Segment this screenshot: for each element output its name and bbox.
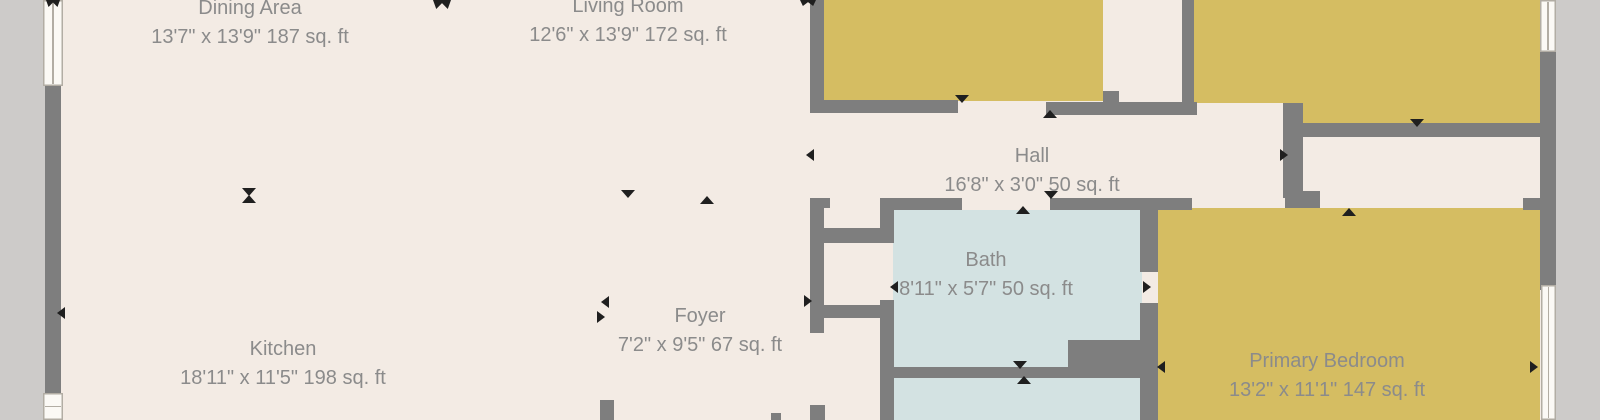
room-dims: 8'11" x 5'7" 50 sq. ft: [899, 275, 1073, 304]
wall-exterior-left: [45, 83, 61, 397]
wall-kitchen-stub: [600, 400, 614, 420]
wall-closet-right-end: [1523, 198, 1556, 210]
room-dims: 16'8" x 3'0" 50 sq. ft: [944, 171, 1119, 200]
room-name: Bath: [899, 246, 1073, 275]
wall-bath-left-lower: [880, 300, 894, 420]
door-marker-up-icon: [1016, 206, 1030, 214]
door-marker-right-icon: [804, 295, 812, 307]
room-name: Primary Bedroom: [1229, 347, 1425, 376]
wall-living-bedroom: [810, 0, 824, 113]
room-name: Dining Area: [151, 0, 349, 23]
wall-bath-bottom: [880, 367, 1070, 378]
wall-hall-top-right: [1046, 102, 1197, 115]
room-label-primary-bedroom: Primary Bedroom 13'2" x 11'1" 147 sq. ft: [1229, 347, 1425, 405]
window-left-top: [43, 0, 63, 86]
window-right-top: [1540, 0, 1556, 52]
wall-niche-upper: [822, 228, 887, 243]
wall-exterior-right: [1540, 50, 1556, 290]
window-mullion: [1547, 2, 1549, 50]
room-name: Living Room: [529, 0, 727, 21]
room-label-hall: Hall 16'8" x 3'0" 50 sq. ft: [944, 142, 1119, 200]
window-mullion: [1548, 287, 1550, 418]
floor-plan: Dining Area 13'7" x 13'9" 187 sq. ft Liv…: [0, 0, 1600, 420]
room-dims: 18'11" x 11'5" 198 sq. ft: [180, 364, 386, 393]
wall-primary-top: [1140, 198, 1192, 210]
door-marker-right-icon: [597, 311, 605, 323]
wall-hall-right-foot: [1285, 191, 1320, 208]
hourglass-marker-icon: [242, 188, 256, 204]
lower-bath-floor: [893, 378, 1142, 420]
wall-bath-right-lower: [1140, 303, 1158, 420]
arrow-up-icon: [242, 195, 256, 203]
door-marker-left-icon: [1157, 361, 1165, 373]
door-marker-down-icon: [621, 190, 635, 198]
door-marker-left-icon: [57, 307, 65, 319]
door-marker-right-icon: [1143, 281, 1151, 293]
room-dims: 13'2" x 11'1" 147 sq. ft: [1229, 376, 1425, 405]
door-marker-up-icon: [1017, 376, 1031, 384]
room-name: Hall: [944, 142, 1119, 171]
door-marker-down-icon: [1410, 119, 1424, 127]
window-right-side: [1541, 285, 1556, 420]
wall-niche-lower: [822, 305, 887, 318]
room-name: Foyer: [618, 302, 782, 331]
wall-bedrooms-divider: [1182, 0, 1194, 110]
door-marker-left-icon: [601, 296, 609, 308]
window-left-bottom: [43, 393, 63, 420]
window-mullion: [45, 406, 61, 408]
room-name: Kitchen: [180, 335, 386, 364]
wall-bath-left-upper: [880, 198, 894, 243]
room-label-dining: Dining Area 13'7" x 13'9" 187 sq. ft: [151, 0, 349, 52]
door-marker-up-icon: [1342, 208, 1356, 216]
door-marker-right-icon: [1530, 361, 1538, 373]
bedroom-top-right-floor-ext: [1303, 0, 1540, 124]
wall-hall-top-left: [810, 100, 958, 113]
wall-stub-closet-top: [1103, 91, 1119, 103]
door-marker-down-icon: [1013, 361, 1027, 369]
room-dims: 12'6" x 13'9" 172 sq. ft: [529, 21, 727, 50]
room-label-foyer: Foyer 7'2" x 9'5" 67 sq. ft: [618, 302, 782, 360]
door-marker-left-icon: [890, 281, 898, 293]
door-marker-right-icon: [1280, 149, 1288, 161]
wall-foyer-right-stub: [822, 198, 830, 208]
door-marker-up-icon: [1043, 110, 1057, 118]
room-dims: 7'2" x 9'5" 67 sq. ft: [618, 331, 782, 360]
wall-bath-notch-block: [1068, 340, 1151, 378]
door-marker-left-icon: [806, 149, 814, 161]
door-marker-up-icon: [700, 196, 714, 204]
wall-foyer-stub: [810, 405, 825, 420]
bedroom-top-left-floor: [822, 0, 1103, 101]
room-dims: 13'7" x 13'9" 187 sq. ft: [151, 23, 349, 52]
room-label-living: Living Room 12'6" x 13'9" 172 sq. ft: [529, 0, 727, 50]
wall-bottom-stub: [771, 413, 781, 420]
room-label-bath: Bath 8'11" x 5'7" 50 sq. ft: [899, 246, 1073, 304]
window-mullion: [52, 2, 54, 84]
door-marker-down-icon: [955, 95, 969, 103]
room-label-kitchen: Kitchen 18'11" x 11'5" 198 sq. ft: [180, 335, 386, 393]
